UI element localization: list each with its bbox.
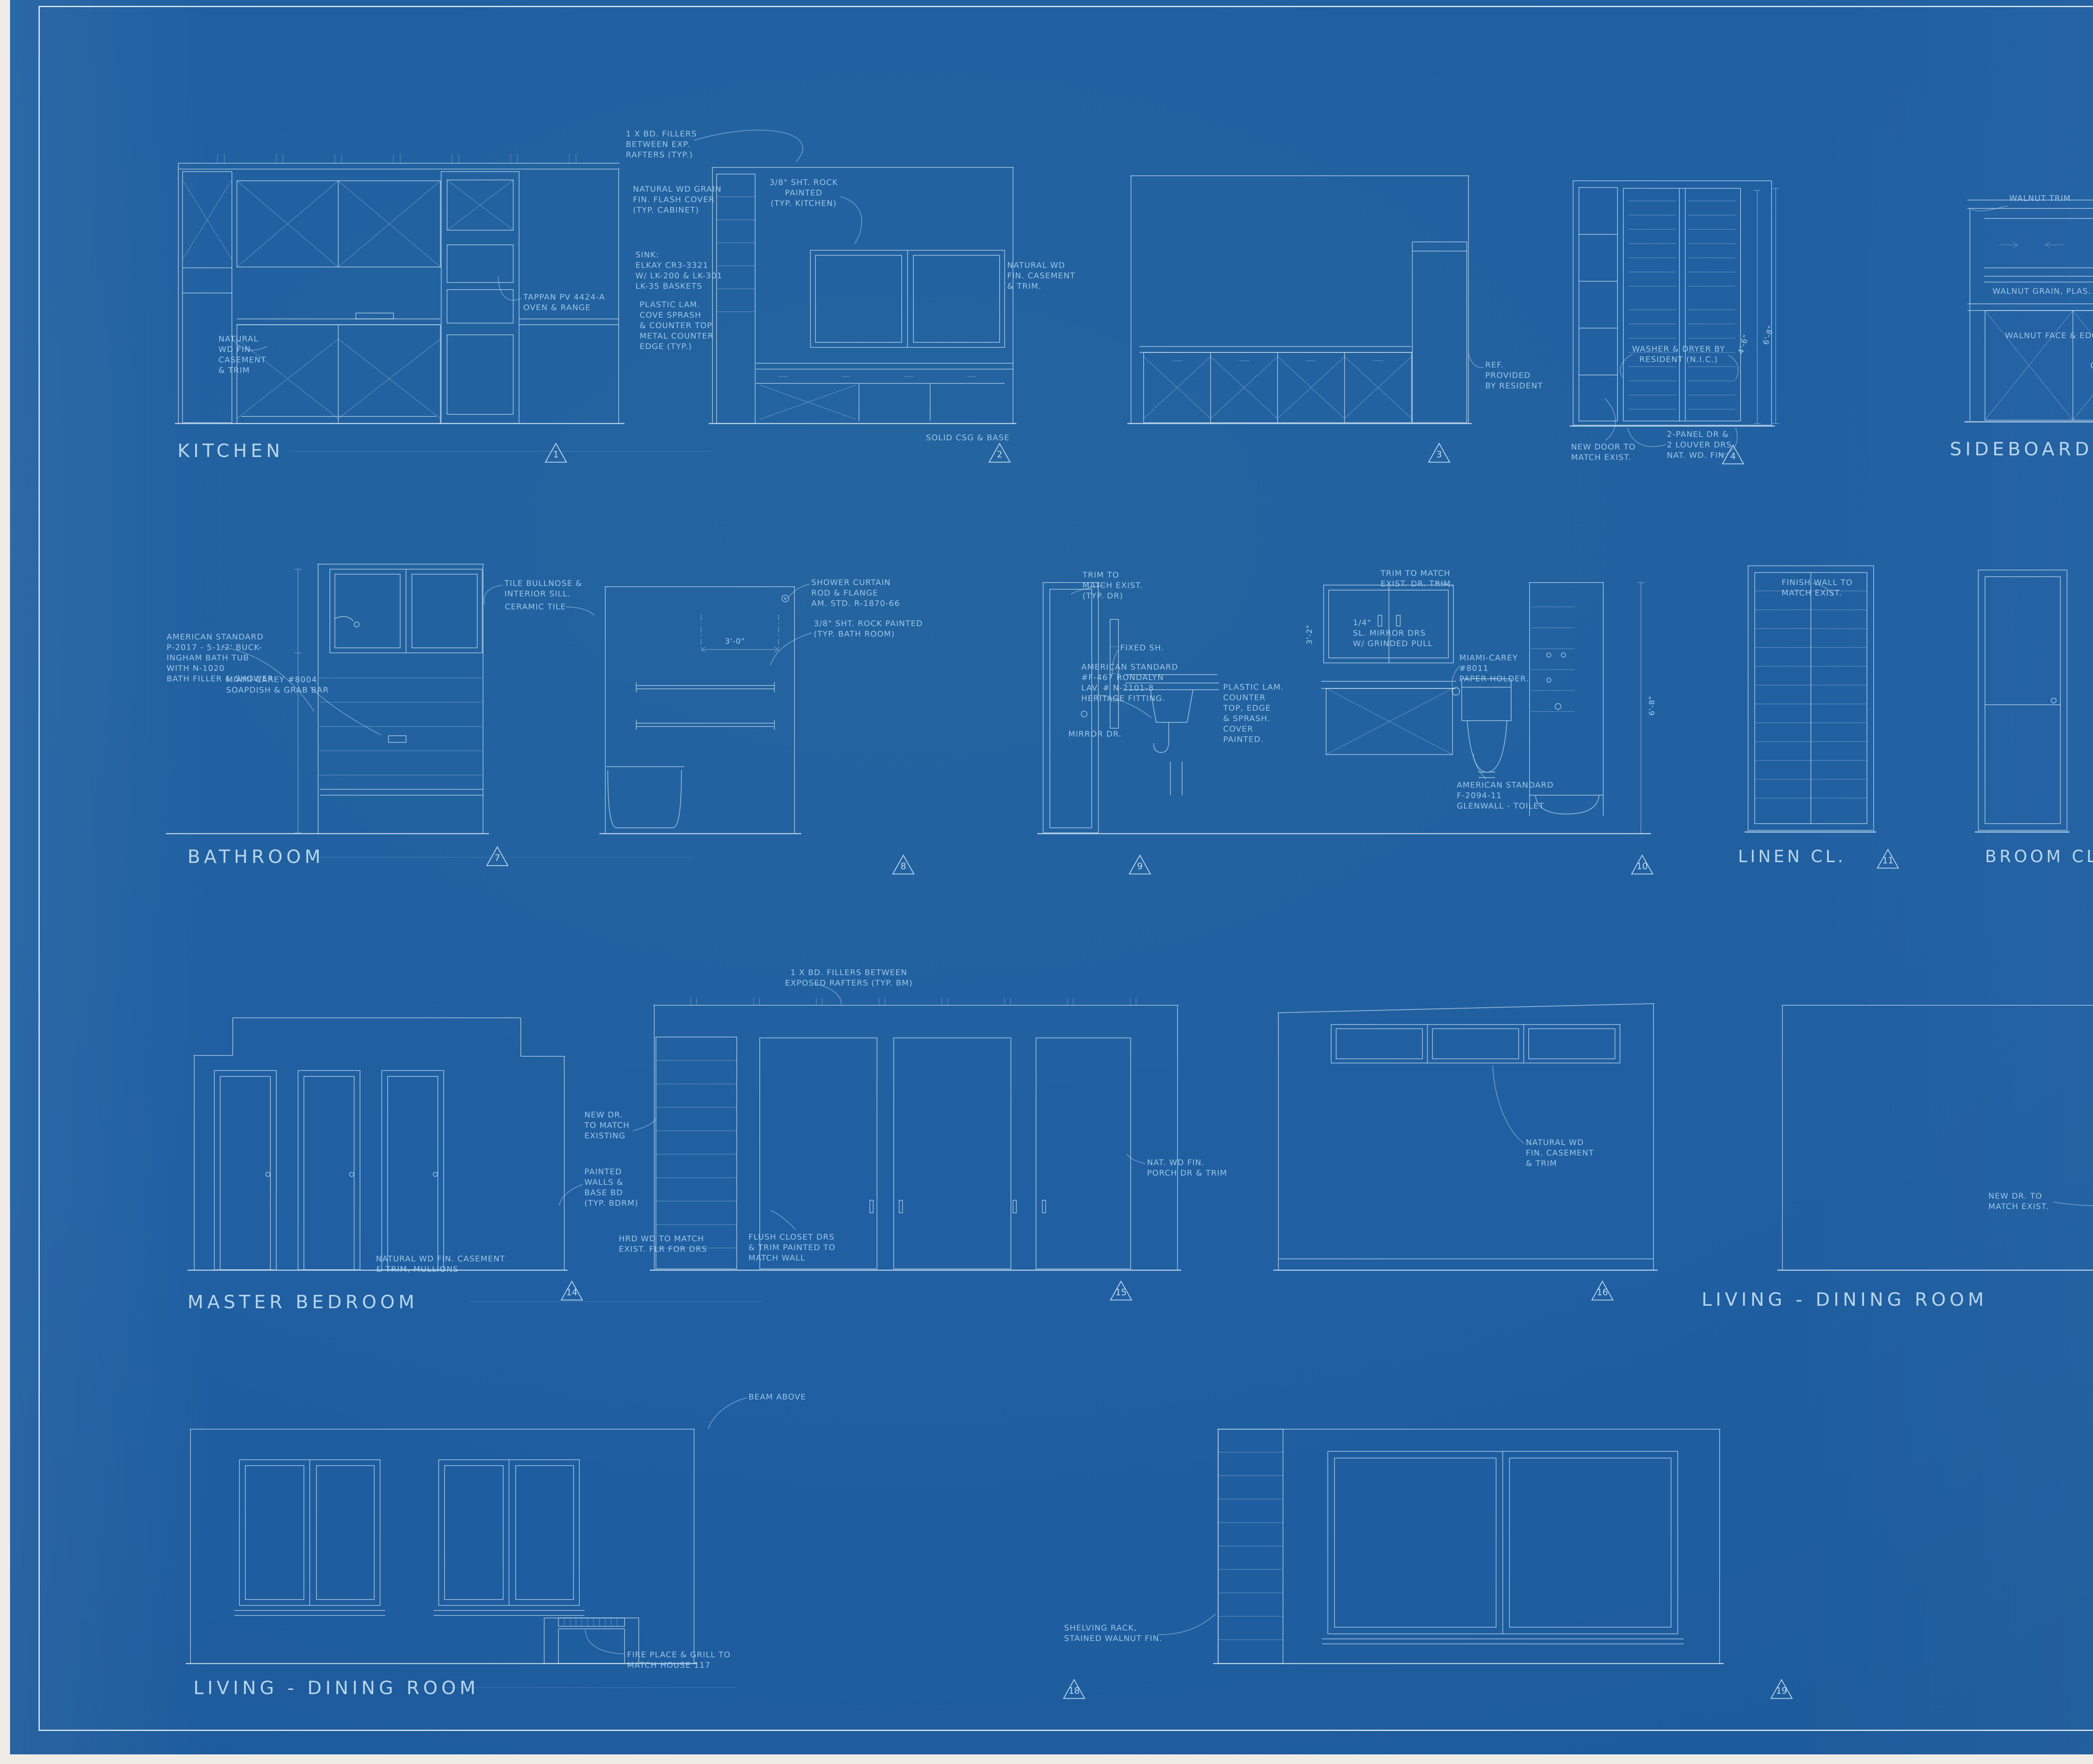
- note-tile-bullnose: TILE BULLNOSE & INTERIOR SILL.: [504, 578, 582, 599]
- note-flash-cover: NATURAL WD GRAIN FIN. FLASH COVER (TYP. …: [633, 184, 722, 216]
- note-casement-trim-k1: NATURAL WD FIN. CASEMENT & TRIM: [219, 334, 266, 376]
- detail-marker-9: 9: [1128, 854, 1152, 876]
- note-trim-match-door: TRIM TO MATCH EXIST. (TYP. DR): [1082, 570, 1143, 601]
- scanned-blueprint-page: { "palette":{"sheet_blue":"#1f5fa2","lin…: [0, 0, 2093, 1764]
- detail-marker-14: 14: [560, 1280, 584, 1302]
- room-label-broom-closet: BROOM CL.: [1985, 847, 2093, 866]
- note-sheetrock-bath: 3/8" SHT. ROCK PAINTED (TYP. BATH ROOM): [814, 619, 923, 639]
- marker-number: 7: [486, 853, 509, 863]
- note-finish-wall-match: FINISH WALL TO MATCH EXIST.: [1782, 578, 1853, 598]
- note-casement-trim-k3: NATURAL WD FIN. CASEMENT & TRIM.: [1007, 260, 1075, 292]
- detail-marker-1: 1: [544, 442, 568, 464]
- note-lavatory-spec: AMERICAN STANDARD #F-467 RONDALYN LAV. #…: [1081, 662, 1178, 704]
- marker-number: 8: [892, 861, 915, 871]
- detail-marker-8: 8: [892, 854, 915, 876]
- note-porch-door-trim: NAT. WD FIN. PORCH DR & TRIM: [1147, 1158, 1227, 1179]
- marker-number: 3: [1427, 449, 1451, 460]
- note-mirror-door: MIRROR DR.: [1068, 729, 1122, 739]
- marker-number: 2: [988, 449, 1011, 460]
- note-plastic-laminate-bath: PLASTIC LAM. COUNTER TOP, EDGE & SPRASH.…: [1223, 682, 1284, 745]
- lettering-guide: [469, 1302, 762, 1302]
- note-concealed-eggcrate: CONCEALED EGGCRATE (N.I.C.): [2080, 361, 2093, 392]
- room-label-master-bedroom: MASTER BEDROOM: [188, 1292, 418, 1313]
- marker-number: 11: [1876, 855, 1900, 865]
- paper-edge-bottom: [0, 1754, 2093, 1764]
- note-new-door-match-exist: NEW DOOR TO MATCH EXIST.: [1571, 442, 1636, 463]
- note-washer-dryer: WASHER & DRYER BY RESIDENT (N.I.C.): [1626, 344, 1731, 365]
- note-shower-curtain-rod: SHOWER CURTAIN ROD & FLANGE AM. STD. R-1…: [811, 578, 900, 609]
- note-casement-mullions: NATURAL WD FIN. CASEMENT & TRIM, MULLION…: [376, 1254, 505, 1275]
- marker-number: 1: [544, 449, 568, 460]
- note-refrigerator-by-resident: REF. PROVIDED BY RESIDENT: [1485, 360, 1543, 391]
- dim-bath-height: 6'-8": [1648, 696, 1656, 716]
- note-new-dr-match-existing: NEW DR. TO MATCH EXISTING: [584, 1110, 630, 1141]
- note-plastic-laminate-kitchen: PLASTIC LAM. COVE SPRASH & COUNTER TOP. …: [640, 300, 714, 352]
- marker-number: 19: [1770, 1686, 1793, 1696]
- note-ceramic-tile: CERAMIC TILE: [505, 602, 566, 612]
- detail-marker-18: 18: [1062, 1678, 1086, 1700]
- note-sheetrock-kitchen: 3/8" SHT. ROCK PAINTED (TYP. KITCHEN): [749, 177, 858, 209]
- note-walnut-face-edge: WALNUT FACE & EDGE: [2005, 331, 2093, 341]
- lettering-guide: [293, 451, 712, 452]
- room-label-linen-closet: LINEN CL.: [1738, 847, 1846, 866]
- note-soapdish-grab-bar: MIAMI-CAREY #8004 SOAPDISH & GRAB BAR: [226, 675, 329, 696]
- note-tappan-oven-range: TAPPAN PV 4424-A OVEN & RANGE: [523, 292, 605, 313]
- marker-number: 16: [1591, 1287, 1614, 1297]
- note-louver-doors: 2-PANEL DR & 2 LOUVER DRS NAT. WD. FIN.: [1667, 429, 1732, 461]
- note-walnut-trim: WALNUT TRIM: [2009, 193, 2071, 204]
- lettering-guide: [444, 1687, 737, 1688]
- marker-number: 10: [1630, 861, 1654, 871]
- note-mirror-sliding-doors: 1/4" SL. MIRROR DRS W/ GRINDED PULL: [1353, 618, 1433, 649]
- detail-marker-15: 15: [1109, 1280, 1133, 1302]
- note-trim-match-dr-trim: TRIM TO MATCH EXIST. DR. TRIM.: [1381, 568, 1454, 589]
- detail-marker-19: 19: [1770, 1678, 1793, 1700]
- note-hardwood-floor: HRD WD TO MATCH EXIST. FLR FOR DRS: [619, 1234, 707, 1255]
- note-toilet-spec: AMERICAN STANDARD F-2094-11 GLENWALL - T…: [1457, 780, 1554, 811]
- detail-marker-16: 16: [1591, 1280, 1614, 1302]
- note-rafter-fillers-bedroom: 1 X BD. FILLERS BETWEEN EXPOSED RAFTERS …: [778, 968, 920, 989]
- marker-number: 9: [1128, 861, 1152, 871]
- detail-marker-10: 10: [1630, 854, 1654, 876]
- detail-marker-3: 3: [1427, 442, 1451, 464]
- note-walnut-grain-laminate: WALNUT GRAIN, PLAS. LAM: [1993, 286, 2093, 297]
- room-label-living-dining-lower: LIVING - DINING ROOM: [193, 1677, 479, 1699]
- marker-number: 15: [1109, 1287, 1133, 1297]
- marker-number: 14: [560, 1287, 584, 1297]
- note-fireplace-grill: FIRE PLACE & GRILL TO MATCH HOUSE 117: [627, 1650, 731, 1671]
- room-label-sideboard: SIDEBOARD: [1950, 439, 2093, 460]
- room-label-kitchen: KITCHEN: [177, 440, 284, 462]
- dim-shower-width: 3'-0": [725, 637, 745, 646]
- note-beam-above: BEAM ABOVE: [748, 1392, 806, 1402]
- note-casing-base: SOLID CSG & BASE: [926, 433, 1010, 443]
- room-label-living-dining-upper: LIVING - DINING ROOM: [1702, 1289, 1988, 1310]
- detail-marker-11: 11: [1876, 848, 1900, 870]
- note-fixed-shelf: FIXED SH.: [1120, 643, 1164, 653]
- room-label-bathroom: BATHROOM: [188, 846, 324, 868]
- note-rafter-fillers-kitchen: 1 X BD. FILLERS BETWEEN EXP. RAFTERS (TY…: [626, 129, 697, 160]
- note-new-dr-living: NEW DR. TO MATCH EXIST.: [1988, 1191, 2049, 1212]
- dim-mirror-height: 3'-2": [1305, 624, 1314, 644]
- paper-edge-left: [0, 0, 10, 1764]
- note-casement-trim-m3: NATURAL WD FIN. CASEMENT & TRIM: [1526, 1137, 1594, 1169]
- note-flush-closet-doors: FLUSH CLOSET DRS & TRIM PAINTED TO MATCH…: [748, 1232, 836, 1263]
- note-paper-holder: MIAMI-CAREY #8011 PAPER HOLDER.: [1459, 653, 1529, 684]
- note-sink-elkay: SINK: ELKAY CR3-3321 W/ LK-200 & LK-301 …: [635, 250, 723, 292]
- detail-marker-2: 2: [988, 442, 1011, 464]
- marker-number: 18: [1062, 1686, 1086, 1696]
- note-painted-walls-base: PAINTED WALLS & BASE BD (TYP. BDRM): [584, 1167, 638, 1209]
- detail-marker-7: 7: [486, 845, 509, 867]
- note-shelving-rack: SHELVING RACK, STAINED WALNUT FIN.: [1064, 1623, 1162, 1644]
